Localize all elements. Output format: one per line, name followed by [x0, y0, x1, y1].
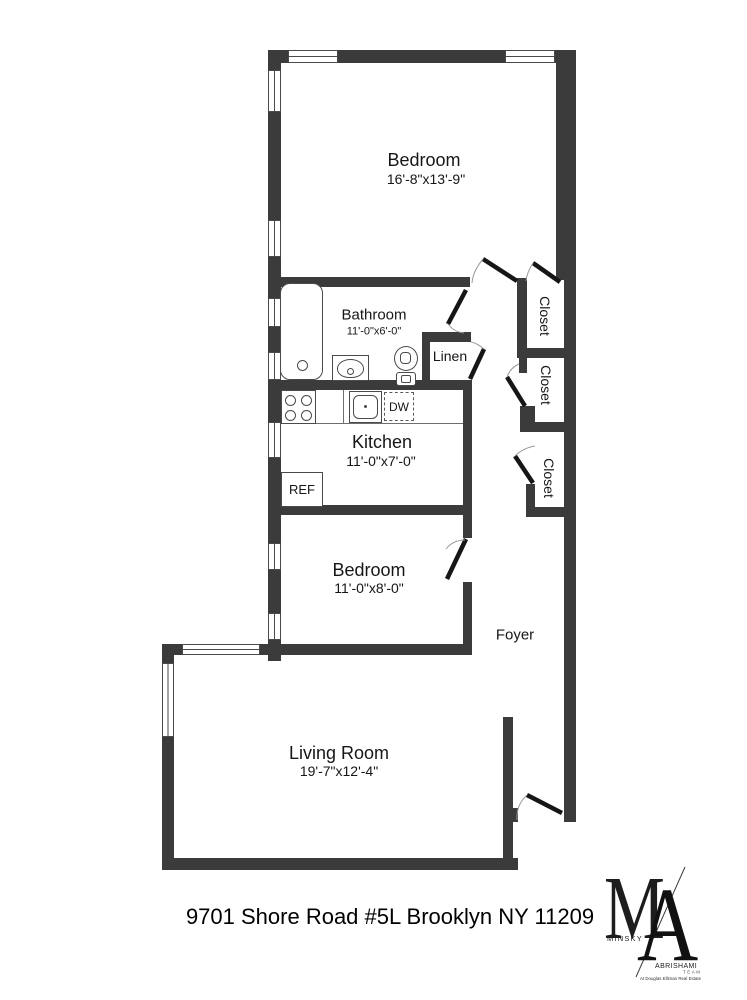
closet-bottom-door-arc — [515, 446, 535, 456]
bedroom1-door-swing — [483, 259, 517, 281]
wall-segment — [503, 717, 513, 870]
entry-door-arc — [517, 795, 527, 820]
window-symbol — [268, 422, 281, 458]
doors-overlay — [0, 0, 747, 1000]
foyer-label: Foyer — [496, 628, 534, 643]
living-room-dimensions: 19'-7"x12'-4" — [300, 764, 378, 778]
dishwasher-box: DW — [384, 392, 414, 421]
wall-segment — [521, 422, 564, 432]
bathroom-door-swing — [448, 290, 466, 324]
refrigerator-label: REF — [289, 482, 315, 497]
window-symbol — [268, 613, 281, 640]
bathtub-icon — [280, 283, 323, 380]
address-title: 9701 Shore Road #5L Brooklyn NY 11209 — [186, 904, 594, 930]
wall-segment — [526, 507, 576, 517]
burner-icon — [285, 410, 296, 421]
burner-icon — [301, 410, 312, 421]
logo-name-minsky: MINSKY — [607, 934, 643, 943]
closet-bottom-door-swing — [515, 456, 533, 483]
wall-segment — [268, 380, 472, 390]
wall-segment — [519, 358, 527, 373]
bedroom2-door-swing — [447, 539, 466, 579]
wall-segment — [503, 808, 518, 822]
window-symbol — [162, 663, 174, 737]
wall-segment — [517, 348, 564, 358]
bathroom-label: Bathroom — [341, 308, 406, 323]
entry-door-swing — [527, 795, 562, 813]
toilet-icon — [394, 346, 418, 371]
wall-segment — [162, 858, 518, 870]
bedroom1-door-arc — [472, 259, 483, 283]
closet-top-label: Closet — [538, 296, 552, 336]
window-symbol — [288, 50, 338, 63]
bathroom-dimensions: 11'-0"x6'-0" — [347, 327, 402, 338]
wall-segment — [517, 278, 527, 358]
dishwasher-label: DW — [389, 400, 409, 414]
burner-icon — [285, 395, 296, 406]
bedroom2-label: Bedroom — [332, 561, 405, 579]
window-symbol — [182, 644, 260, 655]
window-symbol — [268, 543, 281, 570]
bedroom2-door-arc — [446, 540, 465, 549]
kitchen-label: Kitchen — [352, 433, 412, 451]
stove-icon — [281, 390, 316, 424]
floor-plan-page: DW REF Bedroom 16'-8"x13'-9" Bathroom 11… — [0, 0, 747, 1000]
refrigerator-box: REF — [281, 472, 323, 507]
kitchen-dimensions: 11'-0"x7'-0" — [346, 454, 416, 468]
closet-middle-door-swing — [507, 377, 525, 406]
linen-closet-label: Linen — [433, 349, 467, 363]
bedroom2-dimensions: 11'-0"x8'-0" — [334, 581, 404, 595]
kitchen-sink-icon — [349, 391, 382, 423]
brokerage-logo: M A MINSKY ABRISHAMI TEAM At Douglas Ell… — [595, 862, 747, 995]
window-symbol — [268, 70, 281, 112]
linen-door-swing — [470, 349, 484, 379]
wall-segment — [556, 50, 564, 280]
bedroom1-label: Bedroom — [387, 151, 460, 169]
closet-middle-label: Closet — [539, 365, 553, 405]
closet-middle-door-arc — [507, 364, 519, 377]
wall-segment — [564, 50, 576, 822]
logo-team-label: TEAM — [683, 970, 702, 975]
logo-tagline: At Douglas Elliman Real Estate — [640, 976, 702, 981]
bedroom1-dimensions: 16'-8"x13'-9" — [387, 172, 465, 186]
closet-bottom-label: Closet — [542, 458, 556, 498]
closet-top-door-arc — [526, 263, 533, 281]
toilet-tank-icon — [396, 372, 416, 386]
window-symbol — [268, 220, 281, 257]
linen-door-arc — [471, 342, 484, 349]
burner-icon — [301, 395, 312, 406]
window-symbol — [505, 50, 555, 63]
living-room-label: Living Room — [289, 744, 389, 762]
bathroom-sink-icon — [332, 355, 369, 381]
counter-edge-line — [343, 390, 344, 423]
